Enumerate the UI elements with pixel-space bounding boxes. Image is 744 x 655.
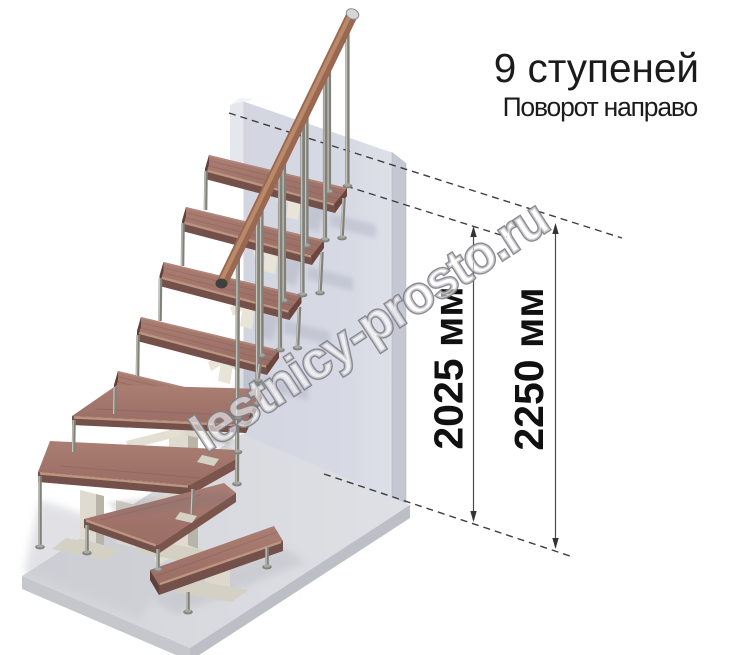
svg-text:9 ступеней: 9 ступеней <box>494 45 699 91</box>
svg-text:Поворот направо: Поворот направо <box>503 92 698 122</box>
svg-text:2250 мм: 2250 мм <box>506 287 552 450</box>
